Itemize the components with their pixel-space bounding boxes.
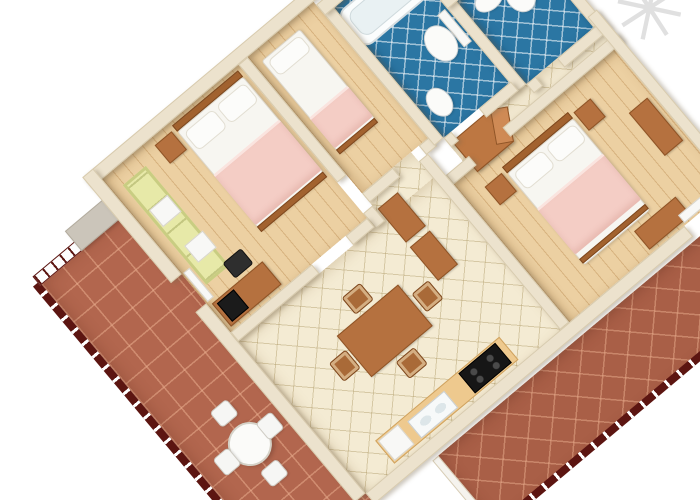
floor-plan-scene: ✳ xyxy=(0,0,700,500)
apartment-floor-plan xyxy=(0,0,700,500)
